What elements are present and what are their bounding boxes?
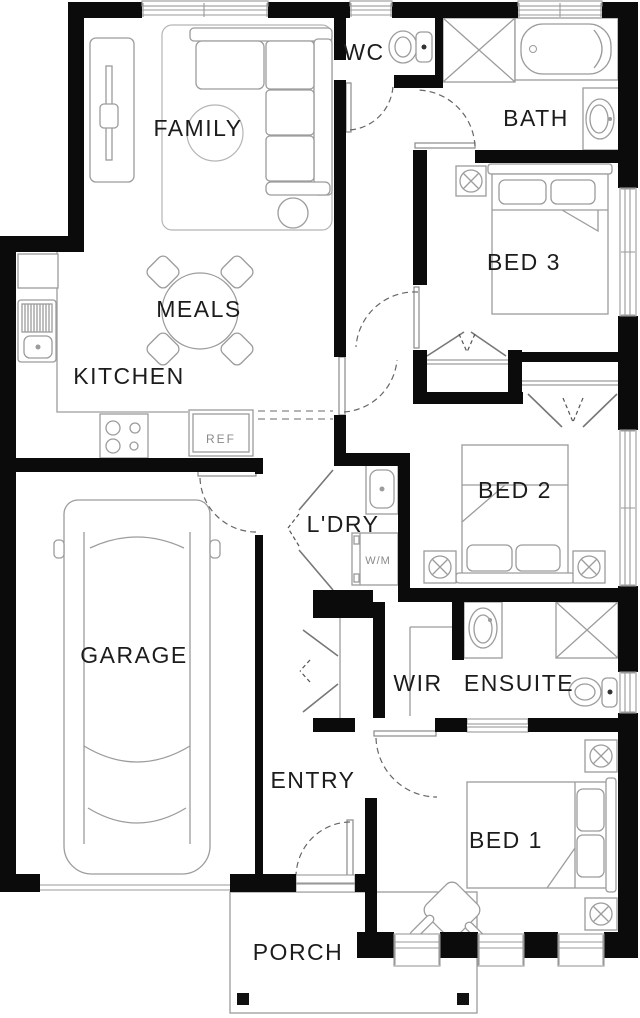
fridge-label: REF [206, 432, 236, 446]
bath-door-leaf [415, 143, 475, 148]
ensuite-vanity-icon [464, 602, 502, 658]
bed2-window-icon [620, 430, 636, 586]
toilet-button [608, 690, 613, 695]
shower-icon [443, 18, 515, 82]
downlight-icon [585, 740, 617, 772]
bath-window-icon [518, 1, 602, 17]
downlight-icon [585, 898, 617, 930]
sofa-seat [266, 41, 314, 89]
family-window-icon [142, 1, 268, 17]
window-sill [350, 1, 392, 6]
bath-door-arc [417, 90, 475, 146]
sink-drain [36, 345, 41, 350]
window-box [558, 934, 604, 966]
floor-plan-page: REF [0, 0, 640, 1018]
tub-drain [380, 487, 385, 492]
pillow [577, 835, 604, 877]
ensuite-window-icon [620, 672, 636, 713]
room-label-wc: WC [343, 39, 384, 65]
window-sill [142, 1, 268, 6]
car-rear-window [90, 537, 184, 548]
tv-unit-icon [90, 38, 134, 182]
bed3-robe-doors [427, 332, 506, 356]
car-side-lines [84, 532, 190, 844]
sofa-chaise [196, 41, 264, 89]
hall-door-arc [344, 360, 397, 412]
linen-doors [303, 630, 338, 712]
bed3-robe-shelf [427, 360, 508, 364]
bed1-window-icon [558, 934, 604, 966]
room-label-porch: PORCH [253, 939, 344, 965]
laundry-tub-icon [366, 464, 398, 514]
front-door-leaf [347, 820, 353, 876]
double-bed-icon [488, 164, 612, 314]
front-door-arc [296, 822, 350, 876]
front-door-sill [296, 884, 355, 892]
bed2-robe-shelf [522, 381, 618, 385]
room-label-garage: GARAGE [80, 642, 187, 668]
toilet-button [422, 45, 427, 50]
bed1-door-arc [376, 738, 437, 797]
floor-plan-drawing: REF [0, 0, 640, 1018]
side-table-icon [278, 198, 308, 228]
pillow [577, 789, 604, 831]
overhead-cupboard-dashes [258, 411, 333, 419]
cooktop-icon [100, 414, 148, 458]
drainer-lines [25, 304, 49, 332]
porch-post-icon [457, 993, 469, 1005]
bed1-door-leaf [374, 731, 436, 736]
car-mirror [54, 540, 64, 558]
linen-swing-dashes [300, 660, 310, 682]
wc-toilet-icon [389, 31, 432, 63]
pillow [516, 545, 560, 571]
room-label-entry: ENTRY [270, 767, 355, 793]
front-door-sill [296, 875, 355, 883]
bathtub-icon [515, 18, 618, 80]
wc-door-leaf [346, 83, 351, 132]
car-hood [88, 808, 186, 823]
bed3-door-leaf [414, 287, 419, 348]
downlight-icon [456, 166, 486, 196]
sofa-back-right [314, 39, 332, 195]
window-box [620, 672, 636, 713]
bed1-window-icon [478, 934, 524, 966]
pillow [467, 545, 512, 571]
bed2-furniture [424, 445, 605, 583]
bed-head [606, 778, 616, 892]
basin [469, 608, 497, 648]
bed3-window-icon [620, 188, 636, 316]
downlight-icon [424, 551, 456, 583]
basin-tap [488, 618, 492, 622]
washer-label: W/M [365, 555, 391, 567]
pillow [551, 180, 595, 204]
tv-bracket [100, 104, 118, 128]
sofa-icon [190, 28, 332, 195]
ensuite-toilet-icon [569, 678, 617, 707]
room-label-ensuite: ENSUITE [464, 670, 574, 696]
basin-tap [608, 117, 612, 121]
car-icon [54, 500, 220, 874]
sofa-seat [266, 136, 314, 181]
wc-door-arc [350, 86, 393, 130]
wc-window-icon [350, 1, 392, 17]
bed3-robe-swing-dashes [459, 334, 475, 352]
pillow [499, 180, 546, 204]
bed1-window-icon [394, 934, 440, 966]
room-label-meals: MEALS [156, 296, 241, 322]
ensuite-slider-sill [467, 719, 528, 724]
tub-inner [521, 24, 611, 74]
sofa-seat [266, 90, 314, 135]
sofa-back [190, 28, 332, 41]
room-label-bed2: BED 2 [478, 477, 552, 503]
car-windshield [84, 746, 190, 762]
robe-shelving [427, 360, 618, 385]
shower-icon [556, 602, 618, 658]
hall-door-leaf [339, 357, 345, 415]
bed3-door-arc [356, 292, 418, 347]
fridge-icon: REF [189, 410, 253, 456]
kitchen-sink-icon [18, 300, 56, 362]
cooktop-body [100, 414, 148, 458]
washing-machine-icon: W/M [352, 533, 398, 585]
window-box [394, 934, 440, 966]
room-label-bed3: BED 3 [487, 249, 561, 275]
bed-head [488, 164, 612, 174]
room-label-kitchen: KITCHEN [73, 363, 184, 389]
laundry-swing-dashes [288, 514, 299, 546]
garage-door-arc [200, 478, 256, 532]
bed2-robe-swing-dashes [563, 398, 583, 422]
window-box [478, 934, 524, 966]
room-label-bed1: BED 1 [469, 827, 543, 853]
room-label-laundry: L'DRY [307, 511, 380, 537]
bath-vanity-icon [583, 88, 619, 150]
pantry-icon [18, 254, 58, 288]
bed-head [456, 573, 574, 583]
room-label-wir: WIR [393, 670, 442, 696]
garage-door-lines [40, 885, 230, 890]
room-label-bath: BATH [503, 105, 569, 131]
ensuite-slider-sill [467, 727, 528, 732]
toilet-bowl [389, 31, 417, 63]
double-bed-icon [456, 445, 574, 583]
bed3-furniture [456, 164, 612, 314]
porch-post-icon [237, 993, 249, 1005]
sofa-armrest [266, 182, 330, 195]
car-body [64, 500, 210, 874]
bed2-robe-doors [528, 394, 617, 427]
downlight-icon [573, 551, 605, 583]
car-mirror [210, 540, 220, 558]
room-label-family: FAMILY [153, 115, 242, 141]
wir-shelving [340, 618, 452, 718]
